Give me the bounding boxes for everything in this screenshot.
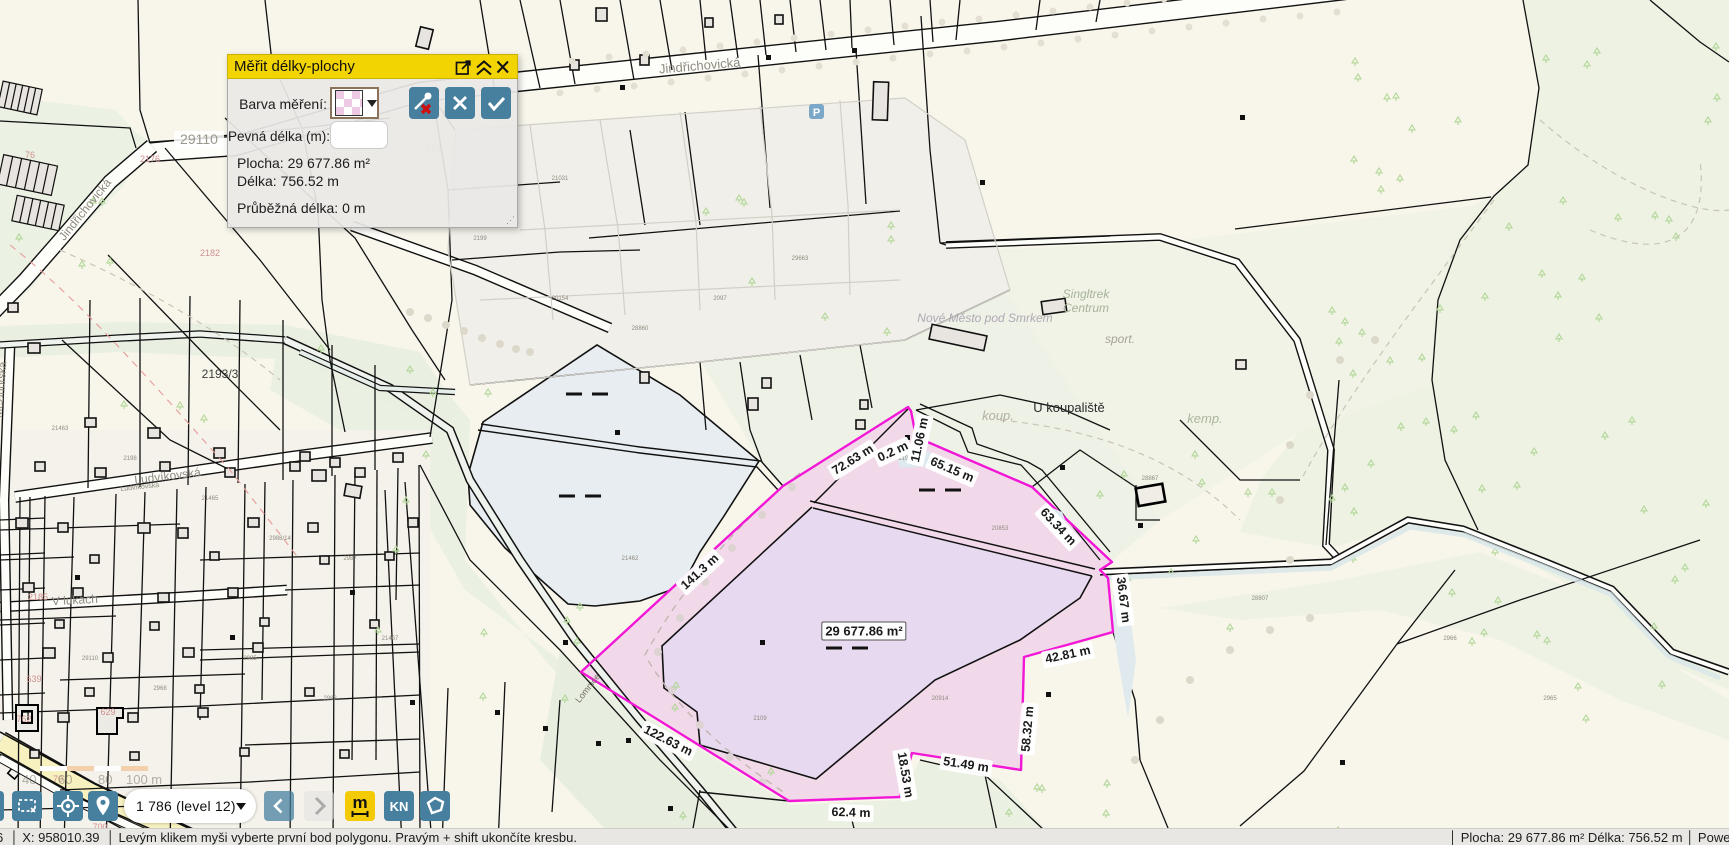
svg-text:P: P: [813, 107, 820, 119]
svg-text:KN: KN: [390, 799, 409, 814]
svg-text:21463: 21463: [52, 426, 69, 432]
svg-text:20853: 20853: [992, 526, 1009, 532]
svg-text:U koupaliště: U koupaliště: [1033, 400, 1105, 415]
svg-text:2199: 2199: [473, 236, 487, 242]
svg-text:2985: 2985: [243, 656, 257, 662]
svg-text:2182: 2182: [200, 248, 220, 258]
svg-text:28867: 28867: [1142, 476, 1159, 482]
svg-text:21467: 21467: [382, 636, 399, 642]
svg-text:2097: 2097: [713, 296, 727, 302]
svg-text:2185: 2185: [28, 592, 48, 602]
svg-text:Centrum: Centrum: [1063, 301, 1109, 315]
svg-text:29110: 29110: [180, 131, 218, 147]
svg-text:639: 639: [26, 674, 41, 684]
svg-text:21462: 21462: [622, 556, 639, 562]
svg-text:29110: 29110: [82, 656, 99, 662]
svg-text:2987: 2987: [343, 556, 357, 562]
svg-text:m: m: [352, 793, 367, 812]
svg-text:2982: 2982: [323, 696, 337, 702]
svg-text:V lukách: V lukách: [51, 592, 98, 608]
svg-text:21031: 21031: [552, 176, 569, 182]
svg-text:sport.: sport.: [1105, 332, 1135, 346]
svg-text:koup.: koup.: [982, 408, 1014, 423]
svg-text:2109: 2109: [753, 716, 767, 722]
svg-text:762: 762: [16, 714, 31, 724]
svg-text:29663: 29663: [792, 256, 809, 262]
svg-text:21465: 21465: [202, 496, 219, 502]
svg-text:2966: 2966: [1443, 636, 1457, 642]
svg-text:2176: 2176: [140, 154, 160, 164]
svg-text:2968: 2968: [153, 686, 167, 692]
svg-text:Nové Město pod Smrkem: Nové Město pod Smrkem: [917, 311, 1052, 325]
svg-text:Singltrek: Singltrek: [1063, 287, 1111, 301]
svg-text:2988/14: 2988/14: [269, 536, 291, 542]
svg-text:76: 76: [25, 150, 35, 160]
svg-text:2198: 2198: [123, 456, 137, 462]
svg-text:629: 629: [100, 707, 115, 717]
svg-text:20914: 20914: [932, 696, 949, 702]
svg-text:2965: 2965: [1543, 696, 1557, 702]
svg-text:28807: 28807: [1252, 596, 1269, 602]
svg-text:28860: 28860: [632, 326, 649, 332]
svg-text:2193/3: 2193/3: [202, 367, 239, 381]
svg-text:kemp.: kemp.: [1187, 411, 1222, 426]
svg-text:20154: 20154: [552, 296, 569, 302]
